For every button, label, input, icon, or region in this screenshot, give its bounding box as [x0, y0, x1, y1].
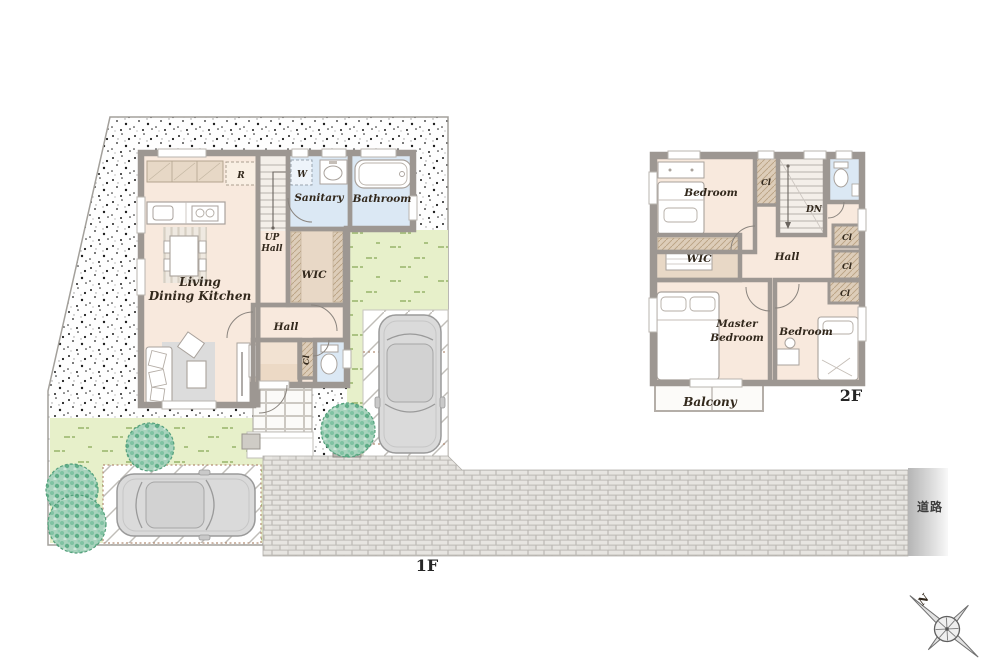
label-bedroom-top: Bedroom — [683, 187, 738, 199]
label-closet-a: Cl — [842, 233, 853, 243]
utility-box — [242, 434, 260, 449]
label-wic-1f: WIC — [301, 269, 327, 281]
floor-plan-svg: 道路 — [0, 0, 1000, 666]
compass-north-label: N — [915, 591, 933, 609]
label-closet-top: Cl — [761, 178, 772, 188]
car — [375, 315, 445, 453]
label-ldk-line2: Dining Kitchen — [148, 289, 251, 303]
label-sanitary: Sanitary — [294, 192, 344, 204]
label-bathroom: Bathroom — [352, 193, 412, 205]
car — [117, 470, 255, 540]
label-balcony: Balcony — [682, 395, 738, 409]
entrance-porch-tiles — [253, 385, 312, 432]
wic-shelf-right — [333, 232, 343, 302]
label-hall-2f: Hall — [774, 251, 800, 263]
brick-road — [263, 456, 908, 556]
label-closet-c: Cl — [840, 289, 851, 299]
compass-icon: N — [891, 572, 1000, 666]
toilet-1f — [321, 345, 338, 374]
tree — [48, 495, 106, 553]
label-up-hall: Hall — [260, 244, 283, 254]
tree — [321, 403, 375, 457]
washbasin — [320, 160, 347, 184]
label-hall-1f: Hall — [273, 321, 299, 333]
label-up: UP — [265, 233, 280, 243]
label-washer: W — [297, 170, 308, 180]
wic-shelf-left — [291, 232, 301, 302]
floor1-label: 1F — [416, 556, 439, 575]
bathtub — [355, 160, 411, 188]
floor2-label: 2F — [840, 386, 863, 405]
road-label: 道路 — [917, 499, 943, 514]
label-down: DN — [805, 205, 823, 215]
label-master-line1: Master — [715, 318, 759, 330]
label-master-line2: Bedroom — [709, 332, 764, 344]
tree — [126, 423, 174, 471]
label-ldk-line1: Living — [178, 275, 221, 289]
house-2f: Bedroom Cl DN Hall Cl Cl Cl WIC Master B… — [649, 151, 866, 411]
label-bedroom-right: Bedroom — [778, 326, 833, 338]
label-refrigerator: R — [236, 171, 245, 181]
floor-plan-page: 道路 — [0, 0, 1000, 666]
label-closet-b: Cl — [842, 262, 853, 272]
label-closet-1f: Cl — [302, 354, 312, 365]
genkan-step — [255, 364, 298, 383]
label-wic-2f: WIC — [686, 253, 712, 265]
